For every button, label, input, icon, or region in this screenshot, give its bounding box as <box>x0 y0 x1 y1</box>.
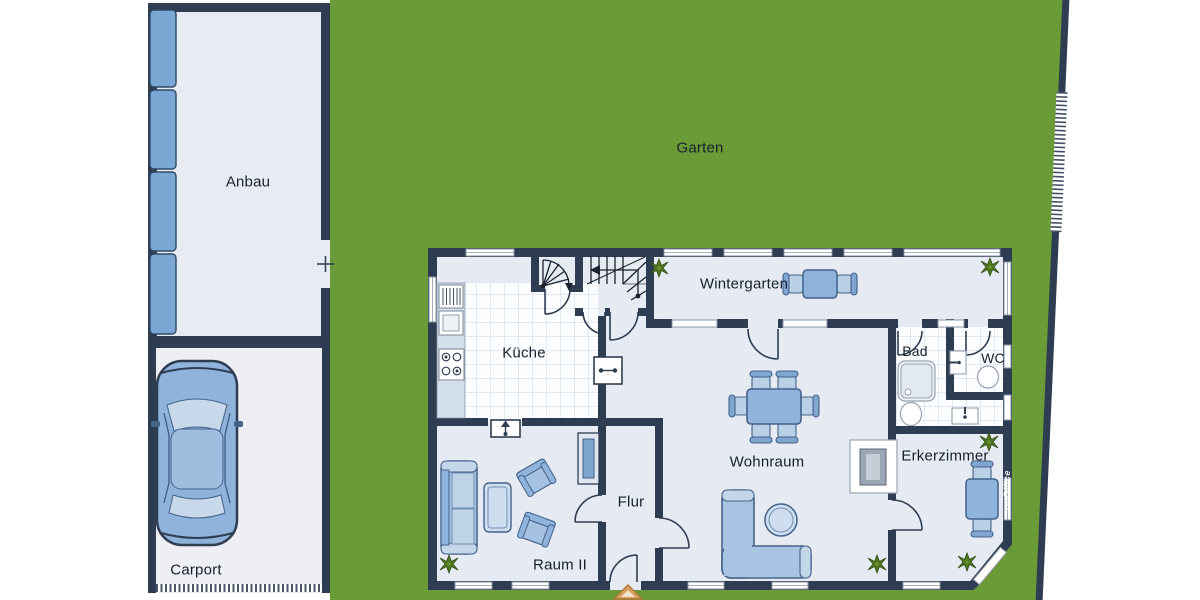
label-wc: WC <box>981 350 1005 366</box>
tv-cabinet <box>850 440 897 493</box>
floor-plan: Garten Anbau Carport Küche Wintergarten … <box>0 0 1200 600</box>
carport-open-edge <box>156 584 322 592</box>
toilet-bath <box>901 403 922 426</box>
coffee-table-round <box>765 504 797 536</box>
kitchen-room2-hatch <box>491 420 520 437</box>
shower <box>898 361 935 401</box>
pass-through-hatch <box>594 357 622 384</box>
stove-icon <box>439 349 464 380</box>
kitchen-sink-icon <box>439 311 463 335</box>
onoffice-watermark: onOffice <box>1002 470 1012 510</box>
label-flur: Flur <box>618 494 645 511</box>
label-anbau: Anbau <box>226 174 270 191</box>
label-kueche: Küche <box>502 345 546 362</box>
label-erkerzimmer: Erkerzimmer <box>901 448 988 465</box>
label-wintergarten: Wintergarten <box>700 276 788 293</box>
floor-plan-drawing <box>0 0 1200 600</box>
kitchen-counter <box>437 283 465 418</box>
coffee-table <box>484 483 511 532</box>
boundary-fence-icon <box>1056 92 1062 232</box>
car-icon <box>151 361 243 545</box>
label-wohnraum: Wohnraum <box>730 454 805 471</box>
label-raum-ii: Raum II <box>533 557 587 574</box>
main-house <box>428 248 1012 599</box>
label-carport: Carport <box>170 562 221 579</box>
toilet-wc <box>978 366 999 388</box>
label-garten: Garten <box>676 140 723 157</box>
annex-window-panels <box>150 10 176 334</box>
carport <box>148 340 330 593</box>
label-bad: Bad <box>902 343 928 359</box>
wardrobe-cabinet <box>578 433 599 484</box>
radiator-icon <box>439 285 463 308</box>
bath-sink <box>952 407 978 424</box>
sofa <box>441 461 477 554</box>
wc-sink <box>948 351 966 374</box>
